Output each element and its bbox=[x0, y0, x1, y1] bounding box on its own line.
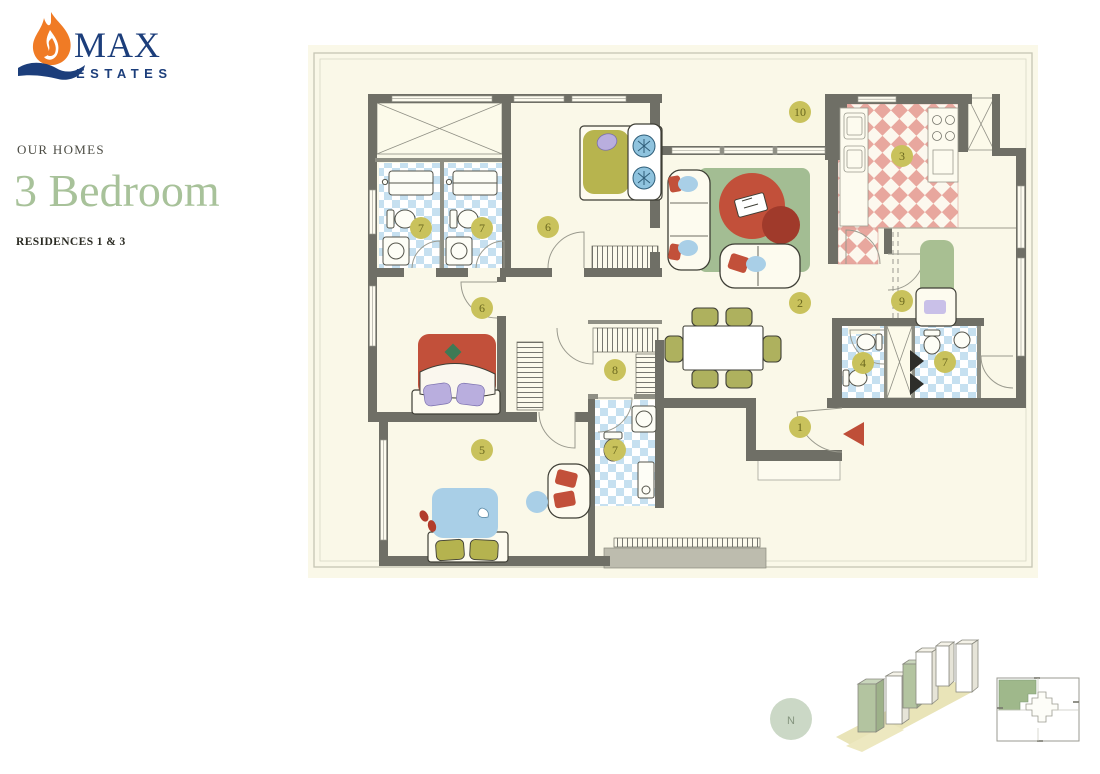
lower-terrace-strip bbox=[604, 548, 766, 568]
living-sofa bbox=[668, 170, 710, 270]
svg-text:10: 10 bbox=[794, 105, 806, 119]
entry-landing bbox=[758, 460, 840, 480]
room-marker-7: 7 bbox=[934, 351, 956, 373]
room-marker-1: 1 bbox=[789, 416, 811, 438]
svg-text:5: 5 bbox=[479, 443, 485, 457]
room-marker-6: 6 bbox=[471, 297, 493, 319]
svg-text:3: 3 bbox=[899, 149, 905, 163]
floorplan: 123456677778910 N bbox=[0, 0, 1100, 774]
room-marker-2: 2 bbox=[789, 292, 811, 314]
svg-text:8: 8 bbox=[612, 363, 618, 377]
svg-text:1: 1 bbox=[797, 420, 803, 434]
utility-bed bbox=[916, 240, 956, 326]
buildings-illustration bbox=[836, 640, 978, 752]
room-marker-7: 7 bbox=[471, 217, 493, 239]
svg-text:6: 6 bbox=[545, 220, 551, 234]
room-marker-6: 6 bbox=[537, 216, 559, 238]
svg-text:9: 9 bbox=[899, 294, 905, 308]
tower-white-2 bbox=[916, 648, 938, 704]
room-marker-9: 9 bbox=[891, 290, 913, 312]
compass-north-label: N bbox=[787, 715, 795, 727]
svg-text:6: 6 bbox=[479, 301, 485, 315]
room-marker-4: 4 bbox=[852, 352, 874, 374]
tower-white-4 bbox=[956, 640, 978, 692]
page: MAX ESTATES OUR HOMES 3 Bedroom RESIDENC… bbox=[0, 0, 1100, 774]
svg-text:7: 7 bbox=[612, 443, 618, 457]
svg-text:2: 2 bbox=[797, 296, 803, 310]
tower-green-1 bbox=[858, 679, 884, 732]
living-loveseat bbox=[720, 244, 800, 288]
svg-text:7: 7 bbox=[479, 221, 485, 235]
room-marker-7: 7 bbox=[604, 439, 626, 461]
room-marker-10: 10 bbox=[789, 101, 811, 123]
svg-text:4: 4 bbox=[860, 356, 866, 370]
bed-top-bedroom bbox=[580, 124, 662, 200]
room-marker-7: 7 bbox=[410, 217, 432, 239]
room-marker-8: 8 bbox=[604, 359, 626, 381]
tower-white-3 bbox=[936, 642, 954, 686]
bed-mid-bedroom bbox=[412, 334, 500, 414]
room-marker-5: 5 bbox=[471, 439, 493, 461]
svg-text:7: 7 bbox=[942, 355, 948, 369]
keyplan bbox=[997, 678, 1079, 741]
svg-text:7: 7 bbox=[418, 221, 424, 235]
compass: N bbox=[770, 698, 812, 740]
room-marker-3: 3 bbox=[891, 145, 913, 167]
